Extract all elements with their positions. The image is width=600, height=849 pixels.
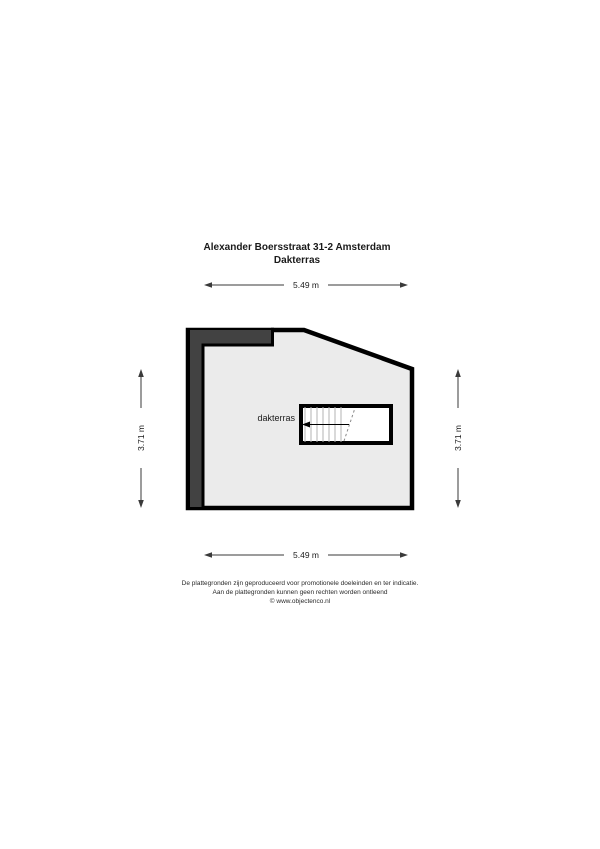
arrow-down-icon xyxy=(455,500,461,508)
floorplan-drawing xyxy=(0,0,600,849)
arrow-right-icon xyxy=(400,282,408,288)
floorplan-page: Alexander Boersstraat 31-2 Amsterdam Dak… xyxy=(0,0,600,849)
arrow-down-icon xyxy=(138,500,144,508)
dimension-label-bottom: 5.49 m xyxy=(284,549,328,561)
footer-line: De plattegronden zijn geproduceerd voor … xyxy=(100,579,500,588)
arrow-up-icon xyxy=(455,369,461,377)
dimension-label-left: 3.71 m xyxy=(135,408,147,468)
footer-copyright: © www.objectenco.nl xyxy=(100,597,500,606)
dimension-label-top: 5.49 m xyxy=(284,279,328,291)
arrow-right-icon xyxy=(400,552,408,558)
room-label: dakterras xyxy=(235,413,295,424)
footer-line: Aan de plattegronden kunnen geen rechten… xyxy=(100,588,500,597)
stairs xyxy=(301,406,391,443)
arrow-left-icon xyxy=(204,552,212,558)
arrow-up-icon xyxy=(138,369,144,377)
footer-disclaimer: De plattegronden zijn geproduceerd voor … xyxy=(100,579,500,606)
dimension-label-right: 3.71 m xyxy=(452,408,464,468)
arrow-left-icon xyxy=(204,282,212,288)
